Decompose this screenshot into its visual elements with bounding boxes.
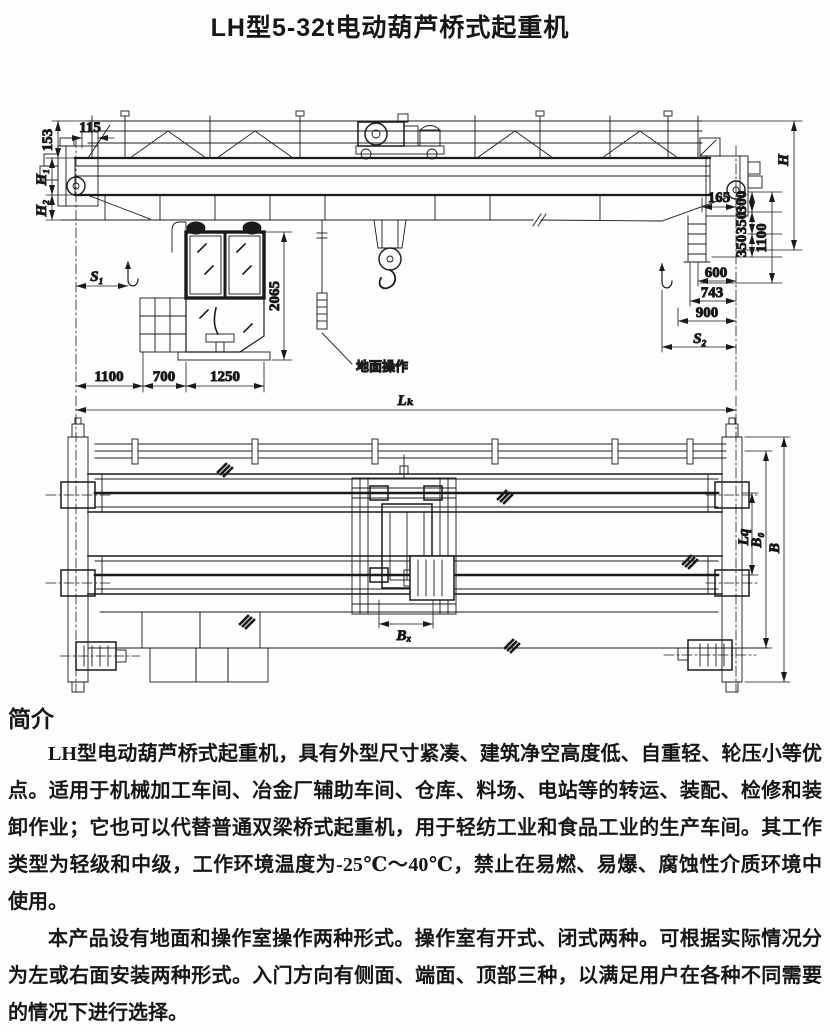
intro-paragraph: LH型电动葫芦桥式起重机，具有外型尺寸紧凑、建筑净空高度低、自重轻、轮压小等优点… [8, 736, 822, 921]
ground-operation-label: 地面操作 [356, 359, 408, 374]
dim-743-label: 743 [701, 285, 724, 301]
dim-900-label: 900 [696, 305, 719, 321]
dim-1100-right-label: 1100 [754, 223, 770, 252]
intro-heading: 简介 [8, 700, 54, 734]
pendant-control [317, 220, 352, 364]
handrail-posts [92, 111, 698, 158]
plan-upper-girder [88, 474, 722, 512]
plan-top-rails [95, 439, 726, 464]
crane-technical-drawing: 地面操作 115 153 H₁ [0, 0, 830, 700]
front-elevation-view: 地面操作 115 153 H₁ [34, 111, 802, 392]
plan-view: Lₖ [46, 393, 790, 692]
dim-s1-label: S₁ [90, 269, 104, 285]
dim-350b-label: 350 [734, 235, 750, 258]
dim-700-label: 700 [153, 369, 176, 385]
dim-153-label: 153 [40, 129, 56, 152]
resistor-box-grid [140, 298, 186, 352]
hook-block [374, 220, 406, 288]
dim-300-label: 300 [734, 191, 750, 214]
dim-h-label: H [776, 153, 792, 167]
technical-drawing-area: 地面操作 115 153 H₁ [0, 0, 830, 700]
bridge-girder [62, 158, 726, 226]
dim-115-label: 115 [79, 120, 101, 136]
dim-lk-label: Lₖ [396, 393, 414, 409]
dim-350a-label: 350 [734, 212, 750, 235]
dim-h2-label: H₂ [34, 200, 50, 218]
intro-body: LH型电动葫芦桥式起重机，具有外型尺寸紧凑、建筑净空高度低、自重轻、轮压小等优点… [8, 736, 822, 1032]
dim-h1-label: H₁ [34, 169, 50, 187]
dim-165-label: 165 [708, 190, 731, 206]
dim-bx-label: Bₓ [395, 628, 411, 644]
plan-dimensions-right [742, 437, 790, 682]
dim-s2-label: S₂ [693, 331, 707, 347]
dim-1100-left-label: 1100 [94, 369, 123, 385]
plan-walkway [88, 612, 768, 682]
access-ladder [684, 216, 710, 262]
dim-2065-label: 2065 [267, 281, 283, 311]
dim-b-label: B [767, 543, 783, 554]
left-travel-motor [60, 642, 140, 670]
dim-1250-label: 1250 [210, 369, 240, 385]
dim-600-label: 600 [705, 265, 728, 281]
dim-b0-label: B₀ [749, 532, 765, 548]
front-dimensions-left [46, 121, 292, 392]
operator-cab [140, 222, 270, 360]
intro-paragraph: 本产品设有地面和操作室操作两种形式。操作室有开式、闭式两种。可根据实际情况分为左… [8, 921, 822, 1032]
